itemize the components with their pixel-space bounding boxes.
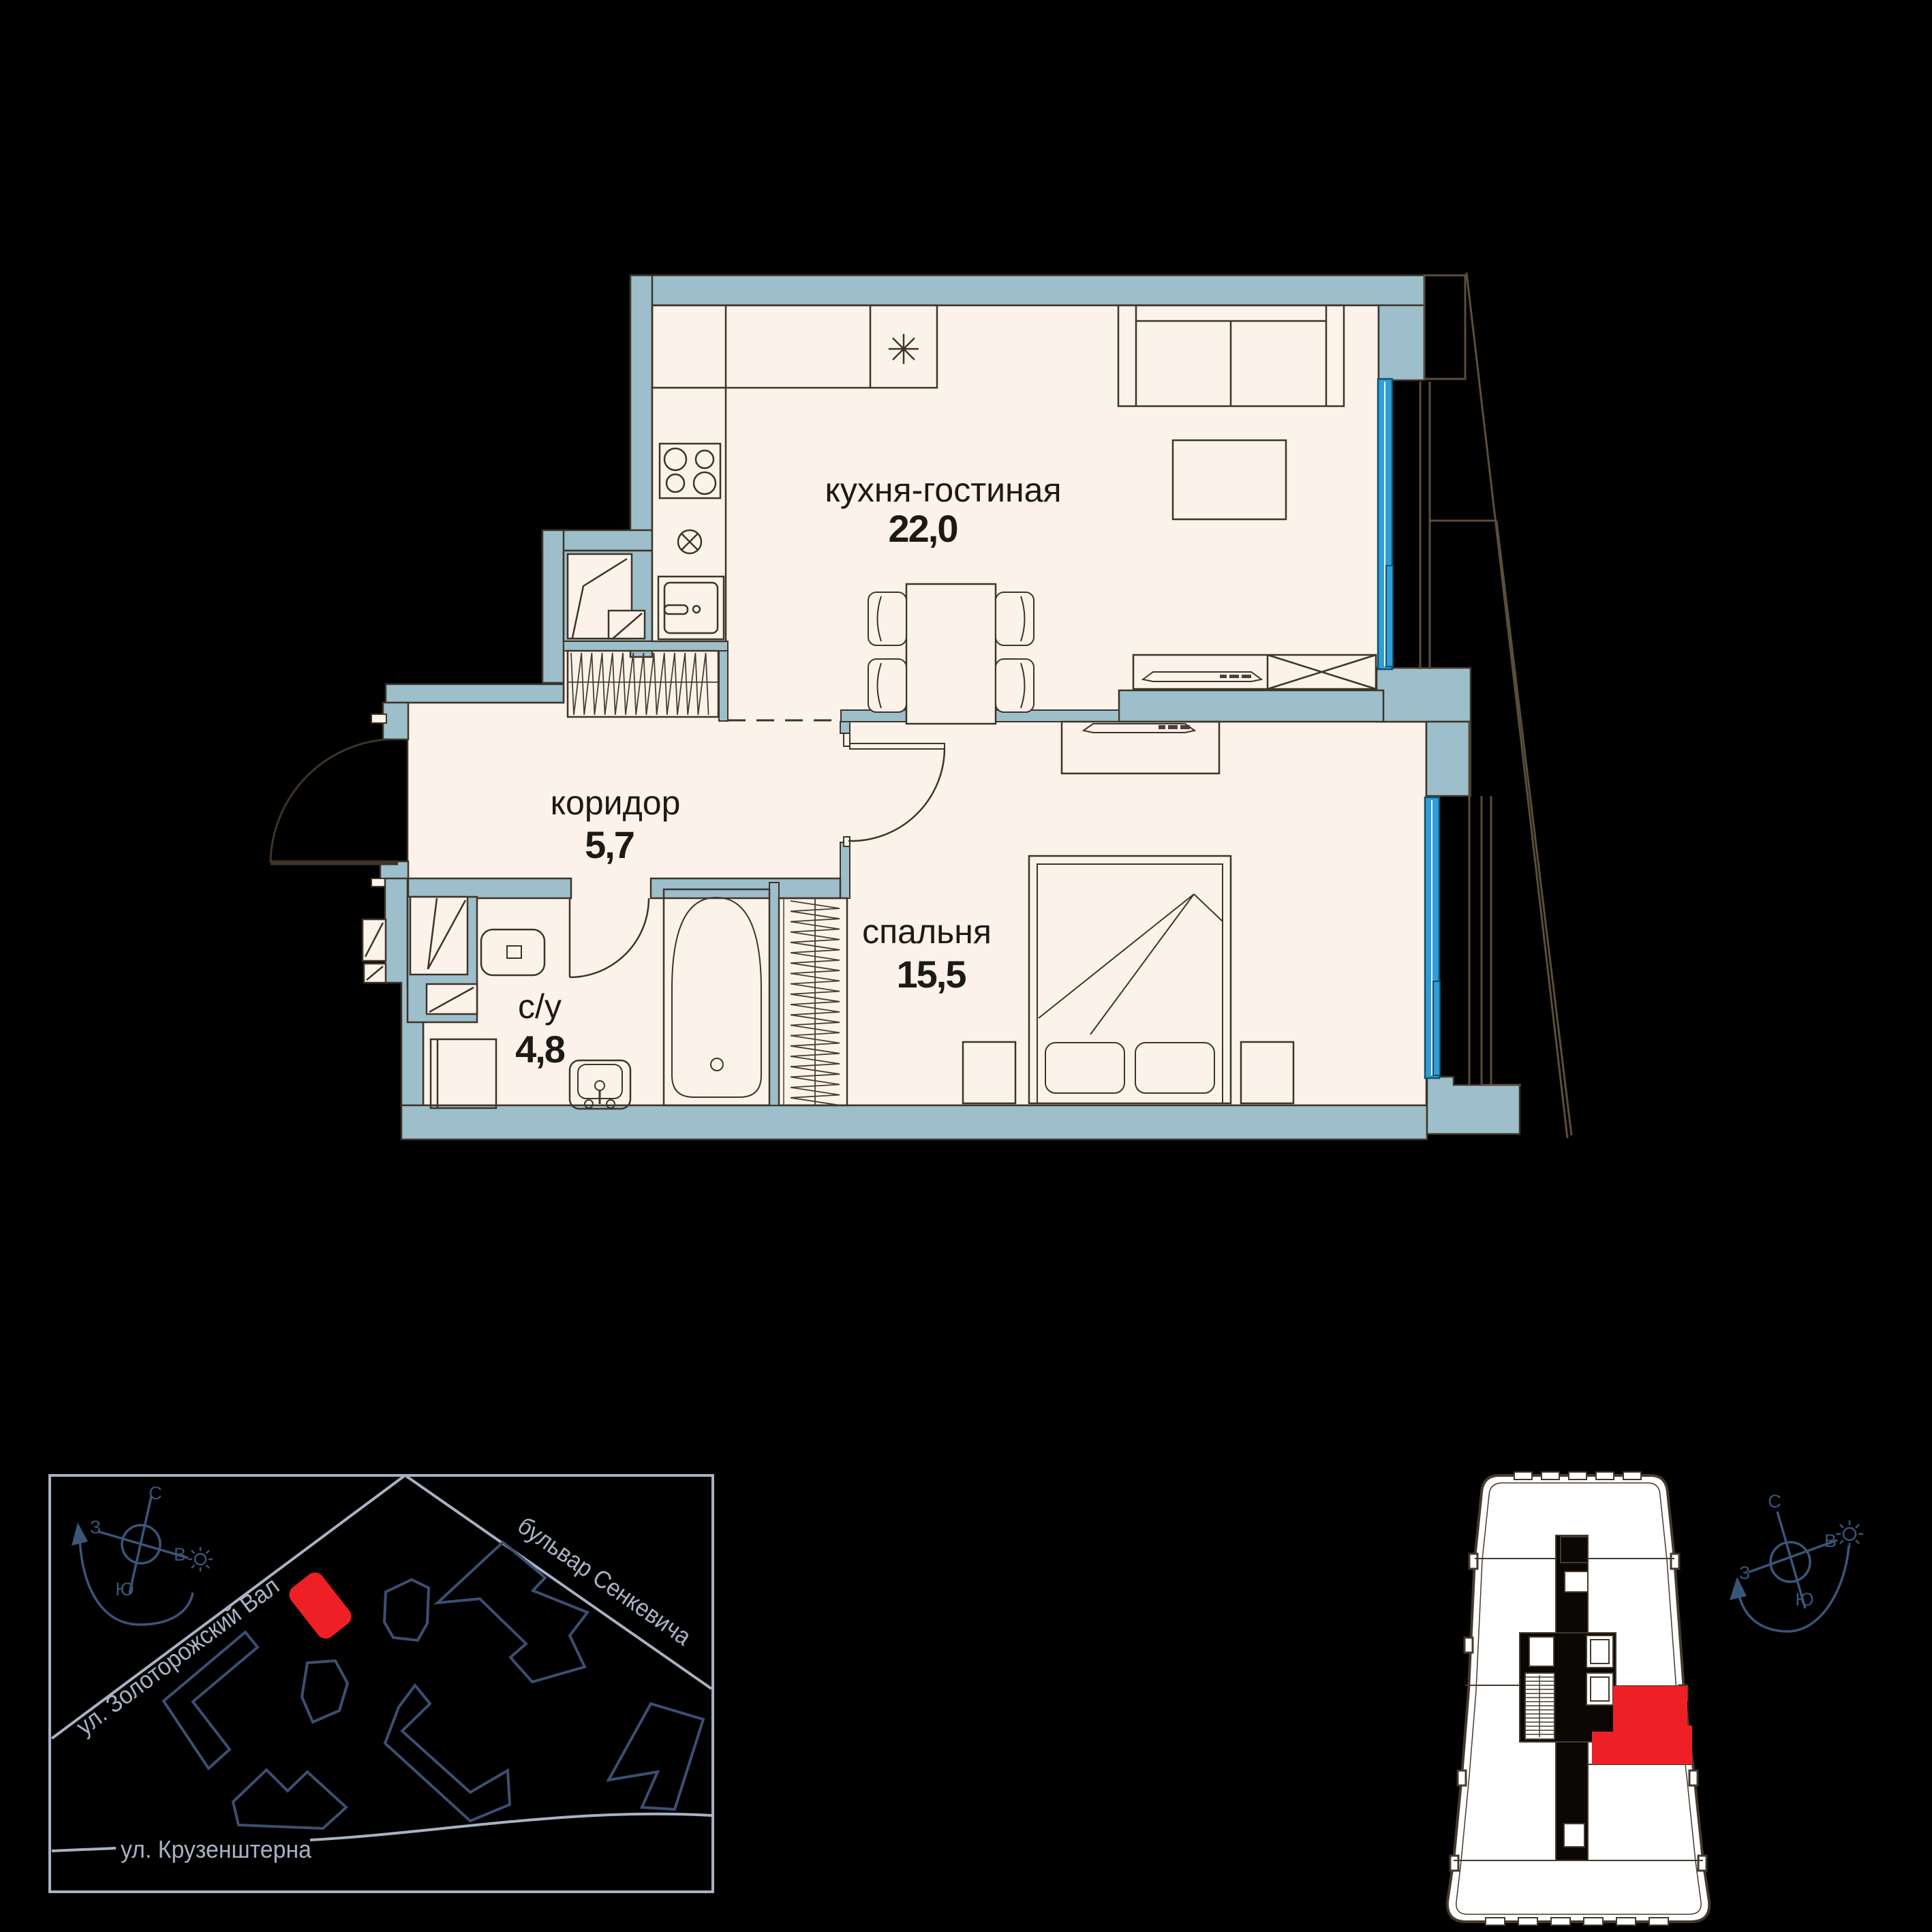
svg-text:с/у: с/у <box>518 987 562 1026</box>
svg-text:С: С <box>1768 1491 1781 1512</box>
svg-text:4,8: 4,8 <box>515 1028 565 1071</box>
svg-text:З: З <box>1739 1563 1750 1583</box>
svg-text:22,0: 22,0 <box>889 507 957 550</box>
svg-text:В: В <box>1824 1531 1837 1551</box>
svg-text:5,7: 5,7 <box>585 823 634 866</box>
svg-text:спальня: спальня <box>862 913 992 951</box>
svg-text:З: З <box>90 1517 101 1537</box>
svg-text:коридор: коридор <box>551 784 681 822</box>
svg-text:15,5: 15,5 <box>897 953 966 996</box>
svg-text:С: С <box>149 1483 162 1503</box>
svg-text:Ю: Ю <box>115 1579 134 1599</box>
svg-text:кухня-гостиная: кухня-гостиная <box>825 471 1061 509</box>
svg-text:В: В <box>174 1544 186 1565</box>
svg-text:ул. Крузенштерна: ул. Крузенштерна <box>121 1835 312 1863</box>
svg-text:Ю: Ю <box>1795 1589 1813 1610</box>
